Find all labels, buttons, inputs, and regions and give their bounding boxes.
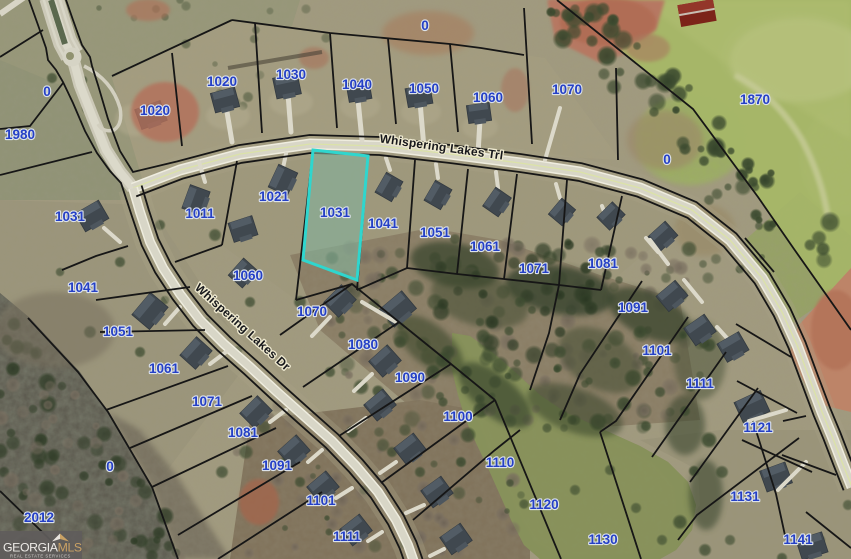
svg-text:1031: 1031 <box>320 205 351 220</box>
svg-text:1980: 1980 <box>5 127 35 142</box>
svg-text:1050: 1050 <box>409 81 439 96</box>
svg-text:1020: 1020 <box>207 74 237 89</box>
svg-text:1091: 1091 <box>618 300 649 315</box>
svg-text:1110: 1110 <box>486 455 515 470</box>
svg-text:0: 0 <box>421 18 429 33</box>
svg-text:1070: 1070 <box>297 304 327 319</box>
svg-text:0: 0 <box>43 84 51 99</box>
svg-text:1091: 1091 <box>262 458 293 473</box>
svg-text:1120: 1120 <box>529 497 558 512</box>
svg-text:1041: 1041 <box>368 216 399 231</box>
svg-text:1011: 1011 <box>185 206 215 221</box>
svg-text:1101: 1101 <box>306 493 336 508</box>
svg-text:1071: 1071 <box>192 394 223 409</box>
svg-text:1051: 1051 <box>103 324 134 339</box>
svg-text:1070: 1070 <box>552 82 582 97</box>
svg-text:1061: 1061 <box>470 239 501 254</box>
svg-text:1041: 1041 <box>68 280 99 295</box>
svg-text:1021: 1021 <box>259 189 290 204</box>
svg-text:0: 0 <box>663 152 671 167</box>
svg-text:1101: 1101 <box>642 343 672 358</box>
svg-text:1060: 1060 <box>233 268 263 283</box>
svg-text:1051: 1051 <box>420 225 451 240</box>
svg-text:1130: 1130 <box>588 532 617 547</box>
svg-text:1071: 1071 <box>519 261 550 276</box>
svg-text:1031: 1031 <box>55 209 86 224</box>
svg-text:1111: 1111 <box>686 376 714 391</box>
svg-text:0: 0 <box>106 459 114 474</box>
svg-text:1121: 1121 <box>743 420 773 435</box>
svg-text:1870: 1870 <box>740 92 770 107</box>
svg-text:1080: 1080 <box>348 337 378 352</box>
svg-text:1060: 1060 <box>473 90 503 105</box>
svg-text:1030: 1030 <box>276 67 306 82</box>
svg-text:1111: 1111 <box>333 529 361 544</box>
svg-text:1100: 1100 <box>443 409 472 424</box>
svg-text:1141: 1141 <box>783 532 813 547</box>
svg-text:1081: 1081 <box>588 256 619 271</box>
svg-text:1020: 1020 <box>140 103 170 118</box>
svg-text:GEORGIAMLS: GEORGIAMLS <box>3 541 82 555</box>
svg-text:1061: 1061 <box>149 361 180 376</box>
svg-text:1081: 1081 <box>228 425 259 440</box>
svg-text:1040: 1040 <box>342 77 372 92</box>
svg-text:1131: 1131 <box>730 489 760 504</box>
svg-text:2012: 2012 <box>24 510 54 525</box>
svg-text:1090: 1090 <box>395 370 425 385</box>
svg-text:REAL ESTATE SERVICES: REAL ESTATE SERVICES <box>10 554 71 559</box>
